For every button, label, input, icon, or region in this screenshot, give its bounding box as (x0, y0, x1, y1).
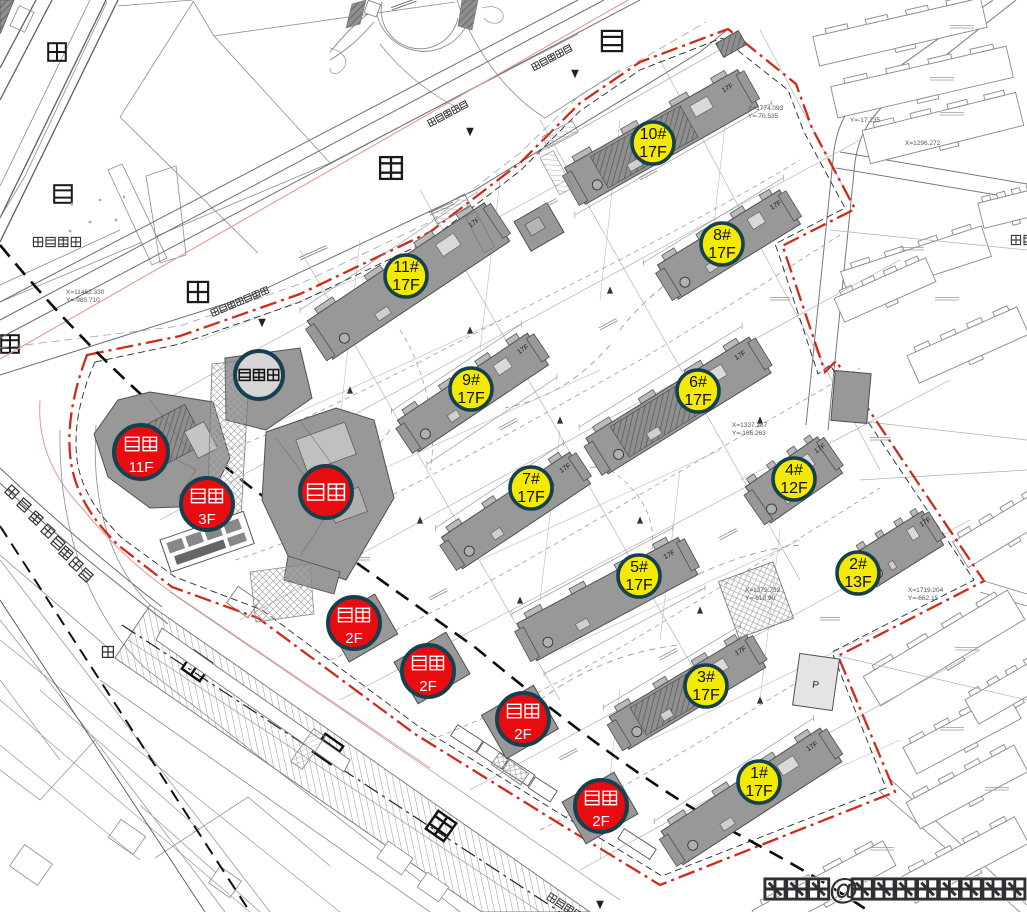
svg-text:5#: 5# (630, 559, 648, 576)
svg-text:12F: 12F (780, 480, 808, 497)
svg-text:17F: 17F (708, 245, 736, 262)
svg-text:2F: 2F (514, 726, 532, 743)
svg-text:6#: 6# (689, 374, 707, 391)
svg-text:4#: 4# (785, 462, 803, 479)
svg-text:X=1719.204: X=1719.204 (908, 587, 944, 594)
svg-text:X=1372.732: X=1372.732 (745, 587, 781, 594)
svg-text:X=1296.272: X=1296.272 (905, 140, 941, 147)
svg-text:X=1774.093: X=1774.093 (748, 105, 784, 112)
svg-text:11F: 11F (129, 459, 154, 476)
svg-text:3F: 3F (198, 511, 216, 528)
svg-text:Y=-610.90: Y=-610.90 (745, 595, 776, 602)
svg-text:3#: 3# (697, 669, 715, 686)
svg-text:2F: 2F (592, 813, 610, 830)
svg-text:X=11462.330: X=11462.330 (66, 289, 105, 296)
svg-text:17F: 17F (684, 392, 712, 409)
svg-text:13F: 13F (844, 574, 872, 591)
svg-text:17F: 17F (457, 390, 485, 407)
svg-text:7#: 7# (522, 471, 540, 488)
svg-text:17F: 17F (692, 687, 720, 704)
svg-text:Y=-985.710: Y=-985.710 (66, 297, 100, 304)
svg-text:X=1337.287: X=1337.287 (732, 422, 768, 429)
svg-text:2F: 2F (419, 678, 437, 695)
svg-text:17F: 17F (625, 577, 653, 594)
svg-text:9#: 9# (462, 372, 480, 389)
svg-text:2F: 2F (345, 630, 363, 647)
svg-text:17F: 17F (517, 489, 545, 506)
svg-text:Y=-662.15: Y=-662.15 (908, 595, 939, 602)
svg-text:Y=-166.263: Y=-166.263 (732, 430, 766, 437)
svg-text:1#: 1# (750, 765, 768, 782)
svg-text:17F: 17F (639, 144, 667, 161)
svg-text:8#: 8# (713, 227, 731, 244)
svg-text:17F: 17F (745, 783, 773, 800)
svg-text:Y=-17.235: Y=-17.235 (850, 117, 881, 124)
svg-text:10#: 10# (640, 126, 667, 143)
svg-text:2#: 2# (849, 556, 867, 573)
svg-text:11#: 11# (393, 259, 419, 276)
svg-text:17F: 17F (392, 277, 420, 294)
